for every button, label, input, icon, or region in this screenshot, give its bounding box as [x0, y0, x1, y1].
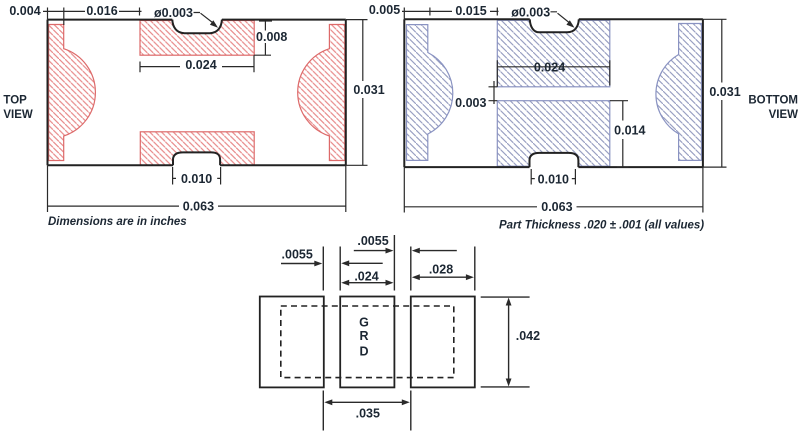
svg-text:R: R [359, 329, 368, 343]
svg-text:0.010: 0.010 [538, 172, 569, 186]
svg-text:0.016: 0.016 [86, 4, 117, 18]
svg-text:0.014: 0.014 [614, 123, 645, 137]
svg-text:0.010: 0.010 [181, 172, 212, 186]
svg-text:0.003: 0.003 [455, 96, 486, 110]
svg-text:0.004: 0.004 [9, 4, 40, 18]
svg-text:Dimensions are in inches: Dimensions are in inches [48, 216, 187, 228]
svg-text:0.063: 0.063 [183, 199, 214, 213]
svg-text:.0055: .0055 [282, 248, 313, 262]
svg-text:VIEW: VIEW [3, 109, 33, 121]
svg-text:ø0.003: ø0.003 [154, 6, 193, 20]
svg-text:Part Thickness .020 ± .001 (al: Part Thickness .020 ± .001 (all values) [499, 219, 704, 231]
svg-text:.042: .042 [516, 329, 540, 343]
svg-text:BOTTOM: BOTTOM [748, 95, 798, 107]
svg-text:0.005: 0.005 [369, 3, 400, 17]
svg-text:.0055: .0055 [357, 234, 388, 248]
svg-text:ø0.003: ø0.003 [511, 5, 550, 19]
svg-text:0.024: 0.024 [185, 58, 216, 72]
svg-text:TOP: TOP [3, 95, 27, 107]
svg-text:.035: .035 [356, 407, 380, 421]
svg-text:0.031: 0.031 [353, 83, 384, 97]
svg-text:G: G [359, 316, 369, 330]
svg-text:0.024: 0.024 [534, 61, 565, 75]
svg-text:VIEW: VIEW [769, 109, 799, 121]
svg-text:.028: .028 [429, 263, 453, 277]
svg-text:0.015: 0.015 [455, 4, 486, 18]
svg-text:0.031: 0.031 [709, 85, 740, 99]
svg-text:.024: .024 [354, 270, 378, 284]
svg-text:D: D [359, 344, 368, 358]
svg-text:0.008: 0.008 [256, 30, 287, 44]
svg-text:0.063: 0.063 [541, 200, 572, 214]
